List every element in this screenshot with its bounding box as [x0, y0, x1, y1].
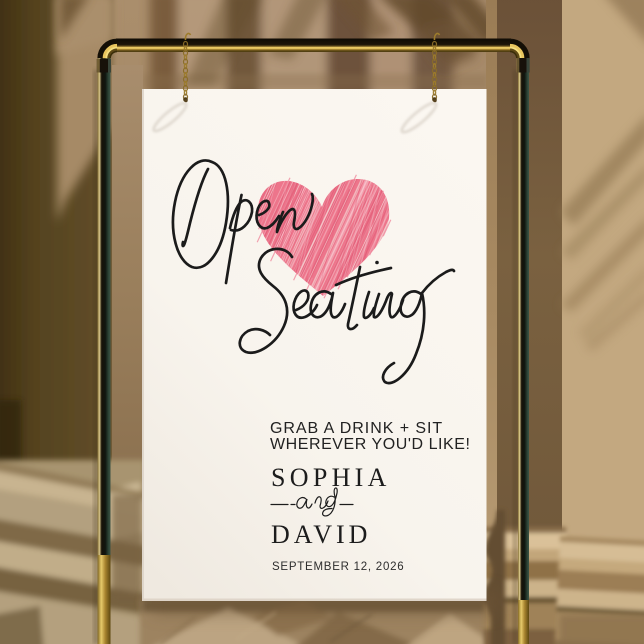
svg-text:SOPHIA: SOPHIA: [271, 463, 391, 492]
svg-text:WHEREVER YOU'D LIKE!: WHEREVER YOU'D LIKE!: [270, 436, 470, 453]
svg-text:SEPTEMBER 12, 2026: SEPTEMBER 12, 2026: [272, 561, 404, 573]
svg-text:GRAB A DRINK + SIT: GRAB A DRINK + SIT: [270, 420, 443, 437]
svg-text:DAVID: DAVID: [271, 520, 371, 549]
